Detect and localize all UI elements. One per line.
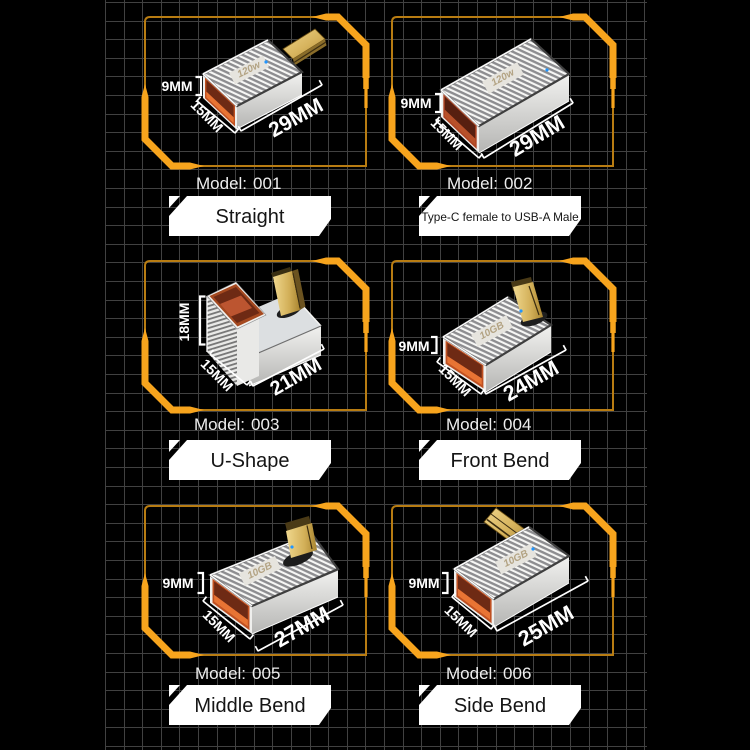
svg-text:Front Bend: Front Bend [451,450,550,472]
svg-text:9MM: 9MM [400,95,431,111]
svg-text:Model:006: Model:006 [446,664,531,683]
svg-text:Straight: Straight [216,206,285,228]
svg-text:9MM: 9MM [162,575,193,591]
svg-text:U-Shape: U-Shape [211,450,290,472]
svg-text:Model:003: Model:003 [194,415,279,434]
svg-text:9MM: 9MM [408,575,439,591]
svg-text:18MM: 18MM [176,303,192,342]
svg-text:Model:005: Model:005 [195,664,280,683]
svg-text:Side Bend: Side Bend [454,695,546,717]
svg-text:Middle Bend: Middle Bend [194,695,305,717]
svg-text:Model:004: Model:004 [446,415,531,434]
svg-text:9MM: 9MM [398,338,429,354]
svg-text:Model:001: Model:001 [196,174,281,193]
svg-text:Type-C female to USB-A Male: Type-C female to USB-A Male [421,210,579,224]
svg-text:9MM: 9MM [161,78,192,94]
svg-text:Model:002: Model:002 [447,174,532,193]
